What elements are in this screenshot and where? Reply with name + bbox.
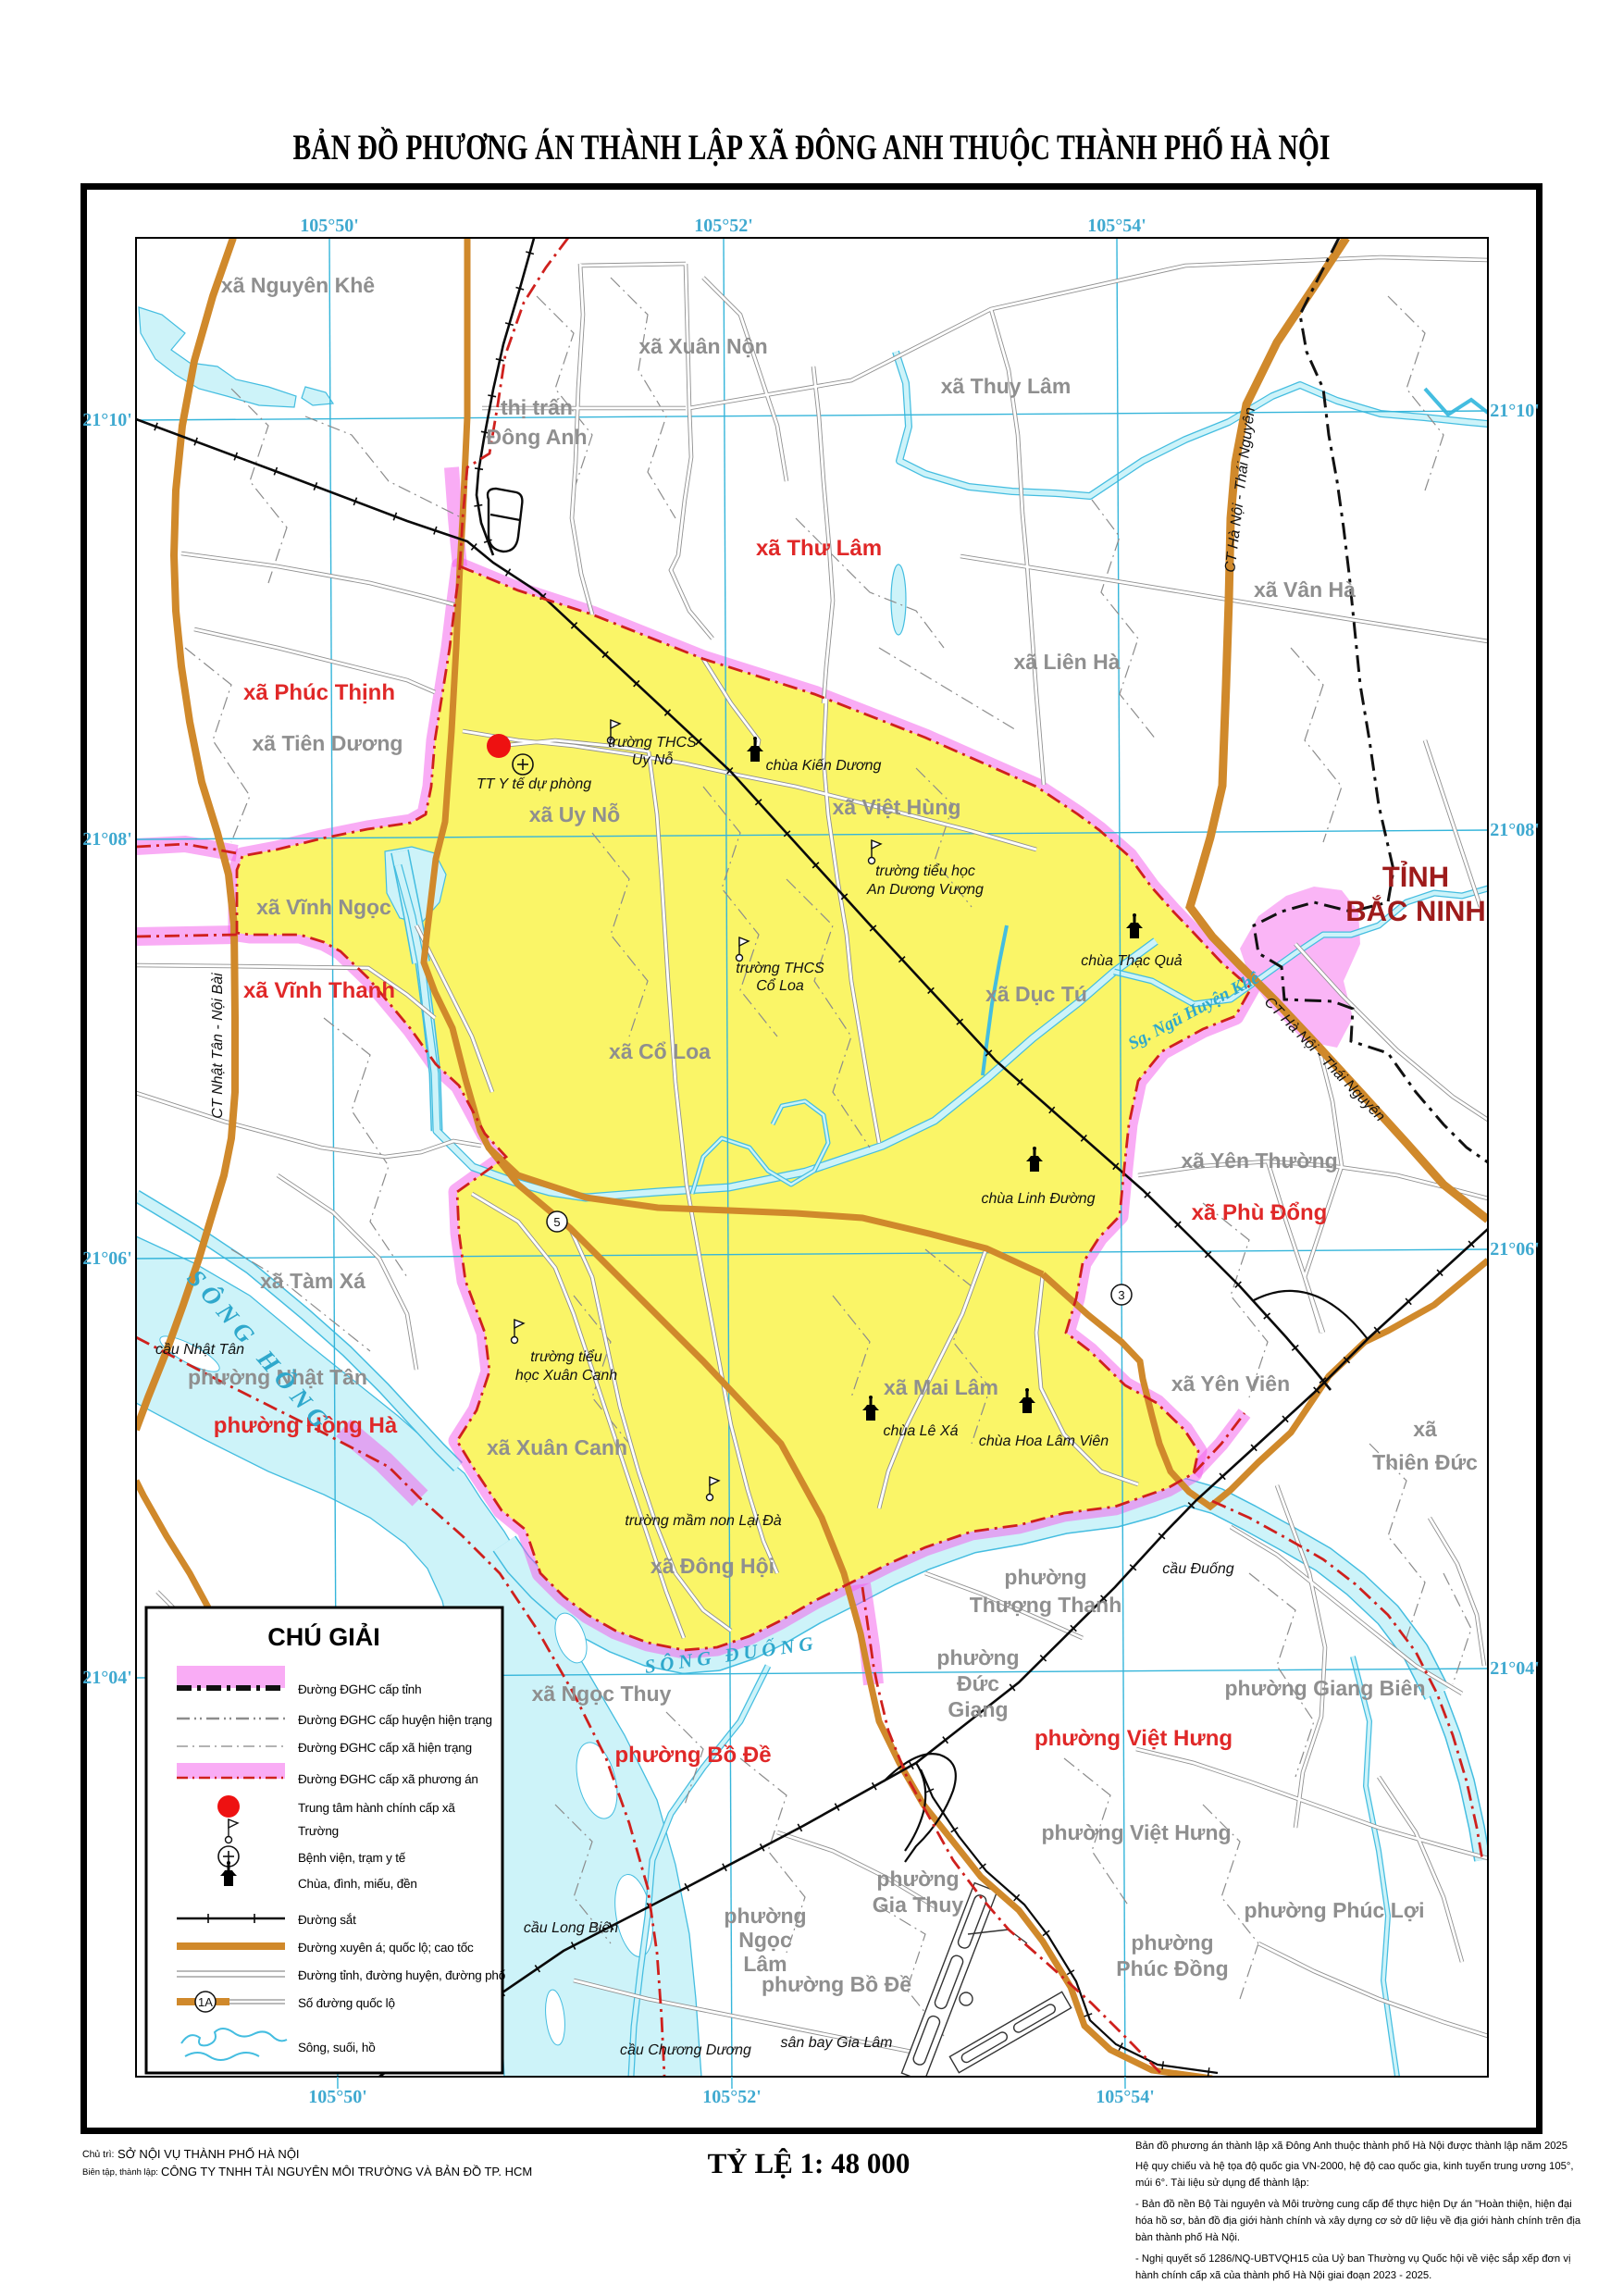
svg-text:xã Dục Tú: xã Dục Tú — [985, 982, 1087, 1006]
svg-text:phường: phường — [1131, 1930, 1213, 1955]
svg-text:chùa Kiến Dương: chùa Kiến Dương — [766, 758, 882, 774]
svg-text:xã Ngọc Thuy: xã Ngọc Thuy — [532, 1682, 672, 1706]
svg-text:chùa Linh Đường: chùa Linh Đường — [982, 1191, 1096, 1207]
svg-text:TỶ LỆ 1: 48 000: TỶ LỆ 1: 48 000 — [708, 2147, 911, 2179]
svg-text:thị trấn: thị trấn — [501, 395, 573, 419]
svg-text:múi 6°. Tài liệu sử dụng để th: múi 6°. Tài liệu sử dụng để thành lập: — [1135, 2177, 1309, 2189]
svg-text:21°04': 21°04' — [1490, 1658, 1540, 1679]
svg-text:trường THCS: trường THCS — [608, 735, 697, 751]
svg-text:chùa Thạc Quả: chùa Thạc Quả — [1081, 953, 1183, 969]
svg-text:xã Xuân Canh: xã Xuân Canh — [487, 1435, 627, 1459]
svg-text:21°10': 21°10' — [1490, 401, 1540, 421]
svg-text:TT Y tế dự phòng: TT Y tế dự phòng — [477, 776, 591, 792]
svg-text:21°08': 21°08' — [82, 829, 132, 850]
svg-text:Đông Anh: Đông Anh — [486, 425, 587, 449]
svg-text:Thượng Thanh: Thượng Thanh — [970, 1593, 1122, 1617]
svg-text:xã Phù Đổng: xã Phù Đổng — [1192, 1200, 1328, 1225]
svg-text:21°08': 21°08' — [1490, 820, 1540, 840]
svg-text:Trung tâm hành chính cấp xã: Trung tâm hành chính cấp xã — [298, 1801, 455, 1815]
svg-text:xã Cổ Loa: xã Cổ Loa — [609, 1039, 711, 1063]
svg-text:21°06': 21°06' — [1490, 1239, 1540, 1260]
svg-text:105°52': 105°52' — [702, 2087, 762, 2107]
svg-text:- Bản đồ nền Bộ Tài nguyên và: - Bản đồ nền Bộ Tài nguyên và Môi trường… — [1135, 2198, 1572, 2210]
svg-text:xã Đông Hội: xã Đông Hội — [650, 1554, 774, 1578]
svg-text:Chủ trì:: Chủ trì: — [82, 2149, 114, 2160]
svg-text:phường Việt Hưng: phường Việt Hưng — [1041, 1820, 1231, 1844]
svg-text:học Xuân Canh: học Xuân Canh — [515, 1368, 617, 1384]
svg-text:21°10': 21°10' — [82, 410, 132, 430]
svg-text:xã Tiên Dương: xã Tiên Dương — [253, 731, 403, 755]
svg-text:Biên tập, thành lập:: Biên tập, thành lập: — [82, 2167, 158, 2178]
svg-text:Cổ Loa: Cổ Loa — [756, 978, 804, 994]
svg-text:trường tiểu: trường tiểu — [530, 1349, 602, 1365]
svg-text:xã Vân Hà: xã Vân Hà — [1254, 577, 1356, 602]
svg-text:Sông, suối, hồ: Sông, suối, hồ — [298, 2041, 376, 2054]
svg-text:Đường ĐGHC cấp xã phương án: Đường ĐGHC cấp xã phương án — [298, 1772, 478, 1786]
svg-text:21°06': 21°06' — [82, 1248, 132, 1269]
svg-text:xã Phúc Thịnh: xã Phúc Thịnh — [243, 680, 395, 705]
svg-text:105°54': 105°54' — [1096, 2087, 1155, 2107]
svg-text:Đường tỉnh, đường huyện, đường: Đường tỉnh, đường huyện, đường phố — [298, 1968, 506, 1982]
svg-text:xã Yên Thường: xã Yên Thường — [1181, 1148, 1337, 1173]
svg-text:trường tiểu học: trường tiểu học — [875, 863, 975, 879]
svg-text:cầu Chương Dương: cầu Chương Dương — [620, 2042, 751, 2058]
svg-text:105°52': 105°52' — [694, 216, 753, 236]
svg-text:1A: 1A — [198, 1995, 213, 2009]
svg-text:phường: phường — [876, 1867, 959, 1891]
svg-text:CT Nhật Tân - Nội Bài: CT Nhật Tân - Nội Bài — [210, 973, 226, 1119]
svg-text:xã Thư Lâm: xã Thư Lâm — [756, 536, 882, 561]
svg-text:Ngọc: Ngọc — [738, 1928, 792, 1952]
svg-text:105°54': 105°54' — [1087, 216, 1146, 236]
svg-text:sân bay Gia Lâm: sân bay Gia Lâm — [781, 2035, 893, 2051]
svg-text:xã Xuân Nộn: xã Xuân Nộn — [638, 334, 767, 358]
svg-text:CÔNG TY TNHH TÀI NGUYÊN MÔI TR: CÔNG TY TNHH TÀI NGUYÊN MÔI TRƯỜNG VÀ BẢ… — [161, 2165, 532, 2178]
svg-text:21°04': 21°04' — [82, 1668, 132, 1688]
svg-text:cầu Đuống: cầu Đuống — [1162, 1561, 1233, 1577]
svg-text:5: 5 — [553, 1215, 560, 1229]
svg-text:xã Thuy Lâm: xã Thuy Lâm — [941, 374, 1072, 398]
svg-text:Bản đồ phương án thành lập xã: Bản đồ phương án thành lập xã Đông Anh t… — [1135, 2141, 1567, 2152]
svg-text:xã Việt Hùng: xã Việt Hùng — [833, 795, 961, 819]
svg-text:xã Liên Hà: xã Liên Hà — [1013, 650, 1120, 674]
svg-text:TỈNH: TỈNH — [1382, 861, 1449, 893]
svg-text:CHÚ GIẢI: CHÚ GIẢI — [267, 1622, 380, 1651]
svg-text:hành chính cấp xã của thành ph: hành chính cấp xã của thành phố Hà Nội g… — [1135, 2270, 1431, 2281]
svg-text:Chùa, đình, miếu, đền: Chùa, đình, miếu, đền — [298, 1877, 417, 1891]
svg-text:bàn thành phố Hà Nội.: bàn thành phố Hà Nội. — [1135, 2232, 1240, 2243]
svg-text:cầu Long Biên: cầu Long Biên — [524, 1920, 618, 1936]
svg-text:Đường xuyên á; quốc lộ; cao tố: Đường xuyên á; quốc lộ; cao tốc — [298, 1941, 474, 1955]
svg-text:Uy Nỗ: Uy Nỗ — [632, 751, 674, 768]
svg-text:phường Bồ Đề: phường Bồ Đề — [614, 1743, 771, 1768]
svg-text:Giang: Giang — [948, 1697, 1008, 1721]
svg-text:xã Nguyên Khê: xã Nguyên Khê — [221, 273, 375, 297]
svg-text:chùa Lê Xá: chùa Lê Xá — [884, 1423, 959, 1439]
svg-text:xã Vĩnh Thanh: xã Vĩnh Thanh — [243, 978, 395, 1003]
svg-text:phường: phường — [1004, 1565, 1086, 1589]
svg-text:3: 3 — [1118, 1288, 1124, 1302]
svg-text:Hệ quy chiếu và hệ tọa độ quốc: Hệ quy chiếu và hệ tọa độ quốc gia VN-20… — [1135, 2161, 1574, 2172]
svg-text:Số đường quốc lộ: Số đường quốc lộ — [298, 1996, 395, 2010]
svg-text:- Nghị quyết số 1286/NQ-UBTVQH: - Nghị quyết số 1286/NQ-UBTVQH15 của Uỷ … — [1135, 2253, 1571, 2265]
svg-text:Đường sắt: Đường sắt — [298, 1913, 356, 1927]
svg-text:Đường ĐGHC cấp tỉnh: Đường ĐGHC cấp tỉnh — [298, 1682, 421, 1696]
svg-text:trường mầm non Lại Đà: trường mầm non Lại Đà — [625, 1513, 781, 1529]
svg-text:SỞ NỘI VỤ THÀNH PHỐ HÀ NỘI: SỞ NỘI VỤ THÀNH PHỐ HÀ NỘI — [118, 2147, 300, 2161]
svg-text:cầu Nhật Tân: cầu Nhật Tân — [155, 1342, 244, 1358]
svg-text:xã: xã — [1413, 1417, 1437, 1441]
svg-text:phường Phúc Lợi: phường Phúc Lợi — [1244, 1898, 1424, 1922]
svg-text:phường Việt Hưng: phường Việt Hưng — [1035, 1726, 1233, 1751]
svg-text:phường Giang Biên: phường Giang Biên — [1225, 1676, 1426, 1700]
svg-text:xã Tàm Xá: xã Tàm Xá — [260, 1269, 365, 1293]
svg-text:Gia Thuy: Gia Thuy — [873, 1893, 964, 1917]
svg-text:Đức: Đức — [957, 1671, 999, 1695]
svg-text:Trường: Trường — [298, 1824, 339, 1838]
svg-text:Đường ĐGHC cấp huyện hiện trạn: Đường ĐGHC cấp huyện hiện trạng — [298, 1713, 492, 1727]
svg-text:xã Vĩnh Ngọc: xã Vĩnh Ngọc — [256, 895, 391, 919]
svg-text:105°50': 105°50' — [300, 216, 359, 236]
svg-text:phường: phường — [936, 1645, 1019, 1669]
svg-text:Bệnh viện, trạm y tế: Bệnh viện, trạm y tế — [298, 1851, 406, 1865]
svg-text:BẮC NINH: BẮC NINH — [1345, 895, 1486, 927]
svg-text:xã Yên Viên: xã Yên Viên — [1171, 1371, 1290, 1396]
svg-text:Thiên Đức: Thiên Đức — [1372, 1450, 1478, 1474]
svg-text:Lâm: Lâm — [743, 1952, 787, 1976]
svg-text:Đường ĐGHC cấp xã hiện trạng: Đường ĐGHC cấp xã hiện trạng — [298, 1741, 472, 1755]
svg-text:hóa hồ sơ, bản đồ địa giới hàn: hóa hồ sơ, bản đồ địa giới hành chính và… — [1135, 2215, 1581, 2227]
svg-text:xã Mai Lâm: xã Mai Lâm — [884, 1375, 998, 1399]
svg-text:chùa Hoa Lâm Viên: chùa Hoa Lâm Viên — [979, 1433, 1109, 1449]
svg-text:Phúc Đồng: Phúc Đồng — [1116, 1956, 1228, 1980]
svg-text:105°50': 105°50' — [308, 2087, 367, 2107]
svg-text:An Dương Vương: An Dương Vương — [866, 882, 984, 898]
svg-text:xã Uy Nỗ: xã Uy Nỗ — [529, 802, 620, 826]
svg-text:BẢN ĐỒ PHƯƠNG ÁN THÀNH LẬP XÃ: BẢN ĐỒ PHƯƠNG ÁN THÀNH LẬP XÃ ĐÔNG ANH T… — [293, 127, 1331, 168]
svg-text:trường THCS: trường THCS — [736, 961, 824, 976]
svg-text:phường: phường — [724, 1904, 806, 1928]
